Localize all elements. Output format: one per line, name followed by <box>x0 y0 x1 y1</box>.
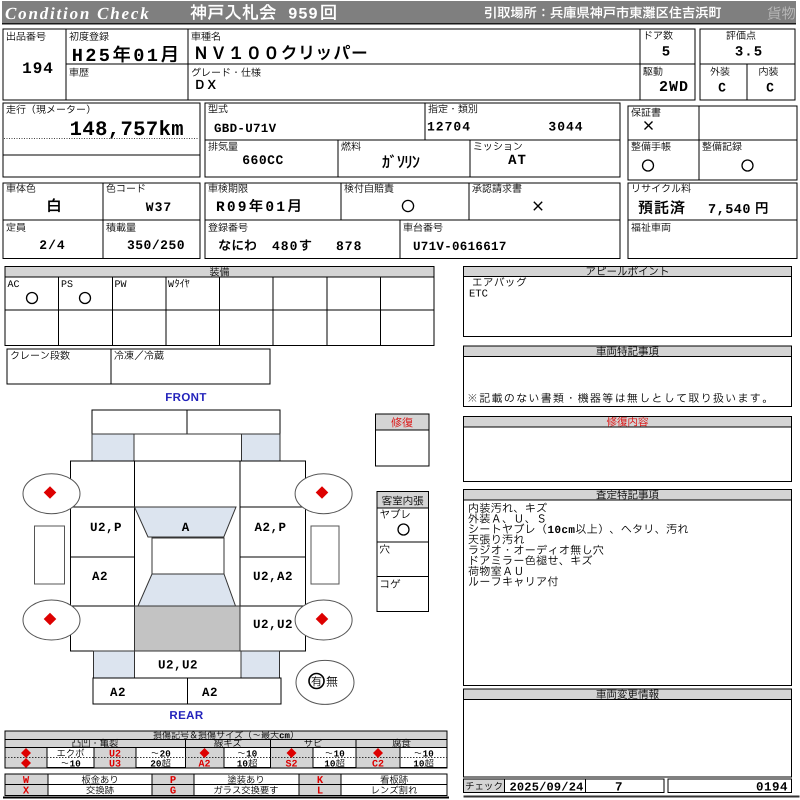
svg-text:C: C <box>718 81 726 96</box>
svg-text:3044: 3044 <box>548 120 583 135</box>
svg-text:194: 194 <box>22 60 54 78</box>
svg-text:A: A <box>182 521 190 535</box>
svg-text:350/250: 350/250 <box>127 238 185 253</box>
svg-text:5: 5 <box>662 45 670 61</box>
svg-text:S2: S2 <box>285 760 297 771</box>
svg-text:12704: 12704 <box>427 120 471 135</box>
svg-text:U2,U2: U2,U2 <box>158 659 198 673</box>
svg-text:959: 959 <box>288 6 318 24</box>
svg-text:A2: A2 <box>202 686 218 700</box>
svg-text:878: 878 <box>336 239 362 254</box>
svg-text:2WD: 2WD <box>659 79 689 96</box>
svg-text:AC: AC <box>8 280 20 291</box>
svg-text:REAR: REAR <box>169 710 203 722</box>
svg-text:7,540: 7,540 <box>708 203 751 218</box>
svg-text:A2,P: A2,P <box>254 521 286 535</box>
svg-text:2/4: 2/4 <box>39 238 65 253</box>
svg-text:ETC: ETC <box>469 289 488 301</box>
svg-text:FRONT: FRONT <box>165 392 207 404</box>
svg-text:W: W <box>168 280 174 291</box>
svg-text:A2: A2 <box>92 570 108 584</box>
svg-text:660CC: 660CC <box>242 153 284 168</box>
svg-text:3.5: 3.5 <box>735 45 763 61</box>
svg-text:U2,P: U2,P <box>90 521 122 535</box>
svg-text:480: 480 <box>272 239 298 254</box>
svg-text:AT: AT <box>508 153 527 169</box>
svg-text:A2: A2 <box>198 760 210 771</box>
svg-text:A2: A2 <box>110 686 126 700</box>
svg-text:G: G <box>170 786 176 798</box>
svg-text:X: X <box>23 786 30 798</box>
svg-text:U71V-0616617: U71V-0616617 <box>413 240 507 254</box>
svg-text:C: C <box>766 81 774 96</box>
svg-text:W37: W37 <box>146 200 172 215</box>
svg-text:L: L <box>317 786 323 798</box>
svg-text:U3: U3 <box>109 760 121 771</box>
svg-text:U2,U2: U2,U2 <box>253 618 293 632</box>
svg-text:U2,A2: U2,A2 <box>253 570 293 584</box>
svg-text:C2: C2 <box>372 760 384 771</box>
svg-text:PW: PW <box>115 280 127 291</box>
svg-text:7: 7 <box>615 781 623 795</box>
svg-text:2025/09/24: 2025/09/24 <box>510 781 584 795</box>
svg-text:PS: PS <box>61 280 73 291</box>
svg-text:Condition Check: Condition Check <box>5 4 151 23</box>
svg-text:0194: 0194 <box>756 781 788 795</box>
svg-text:GBD-U71V: GBD-U71V <box>214 122 277 136</box>
